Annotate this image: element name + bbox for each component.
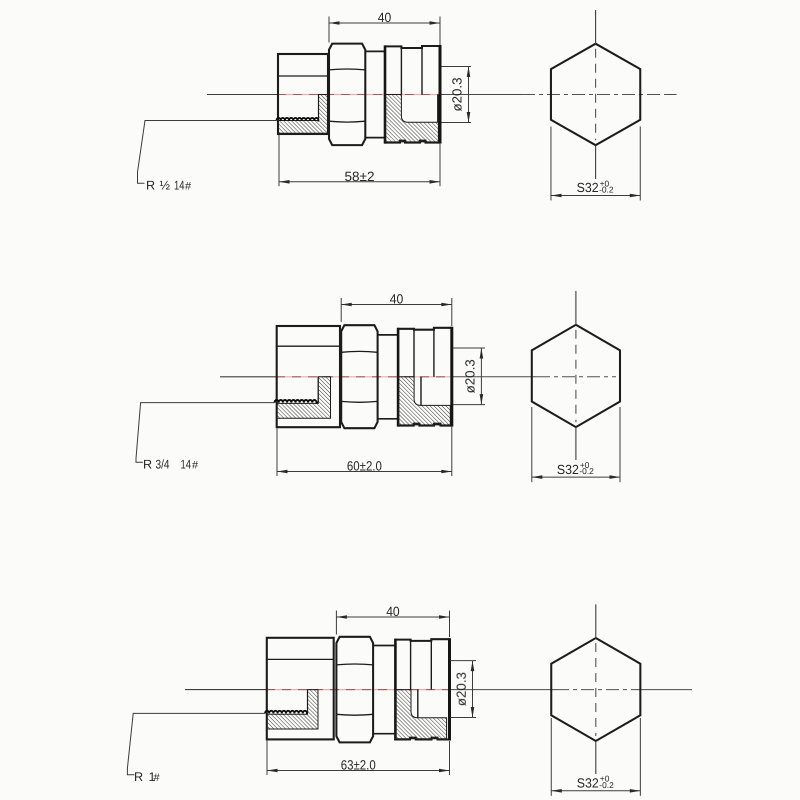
svg-text:14: 14 [181, 458, 192, 472]
svg-text:63±2.0: 63±2.0 [341, 758, 376, 773]
svg-text:#: # [154, 772, 161, 784]
svg-text:#: # [185, 181, 192, 193]
svg-text:-0.2: -0.2 [579, 466, 594, 476]
svg-text:S32: S32 [557, 462, 579, 477]
svg-text:ø20.3: ø20.3 [462, 359, 477, 393]
svg-text:60±2.0: 60±2.0 [347, 459, 382, 474]
svg-text:40: 40 [378, 10, 392, 25]
svg-text:#: # [192, 460, 199, 472]
svg-text:14: 14 [174, 179, 185, 193]
svg-text:R: R [134, 770, 143, 784]
svg-text:40: 40 [386, 604, 400, 619]
svg-text:½: ½ [160, 179, 171, 193]
svg-text:ø20.3: ø20.3 [454, 672, 469, 706]
svg-text:S32: S32 [577, 180, 599, 195]
svg-text:ø20.3: ø20.3 [450, 78, 465, 112]
svg-text:40: 40 [390, 292, 404, 307]
svg-text:R: R [143, 458, 152, 472]
svg-text:R: R [146, 179, 155, 193]
svg-text:-0.2: -0.2 [599, 185, 614, 195]
svg-text:-0.2: -0.2 [599, 780, 614, 790]
svg-text:58±2: 58±2 [345, 169, 375, 184]
svg-text:3/4: 3/4 [156, 458, 170, 472]
svg-text:S32: S32 [577, 776, 599, 791]
